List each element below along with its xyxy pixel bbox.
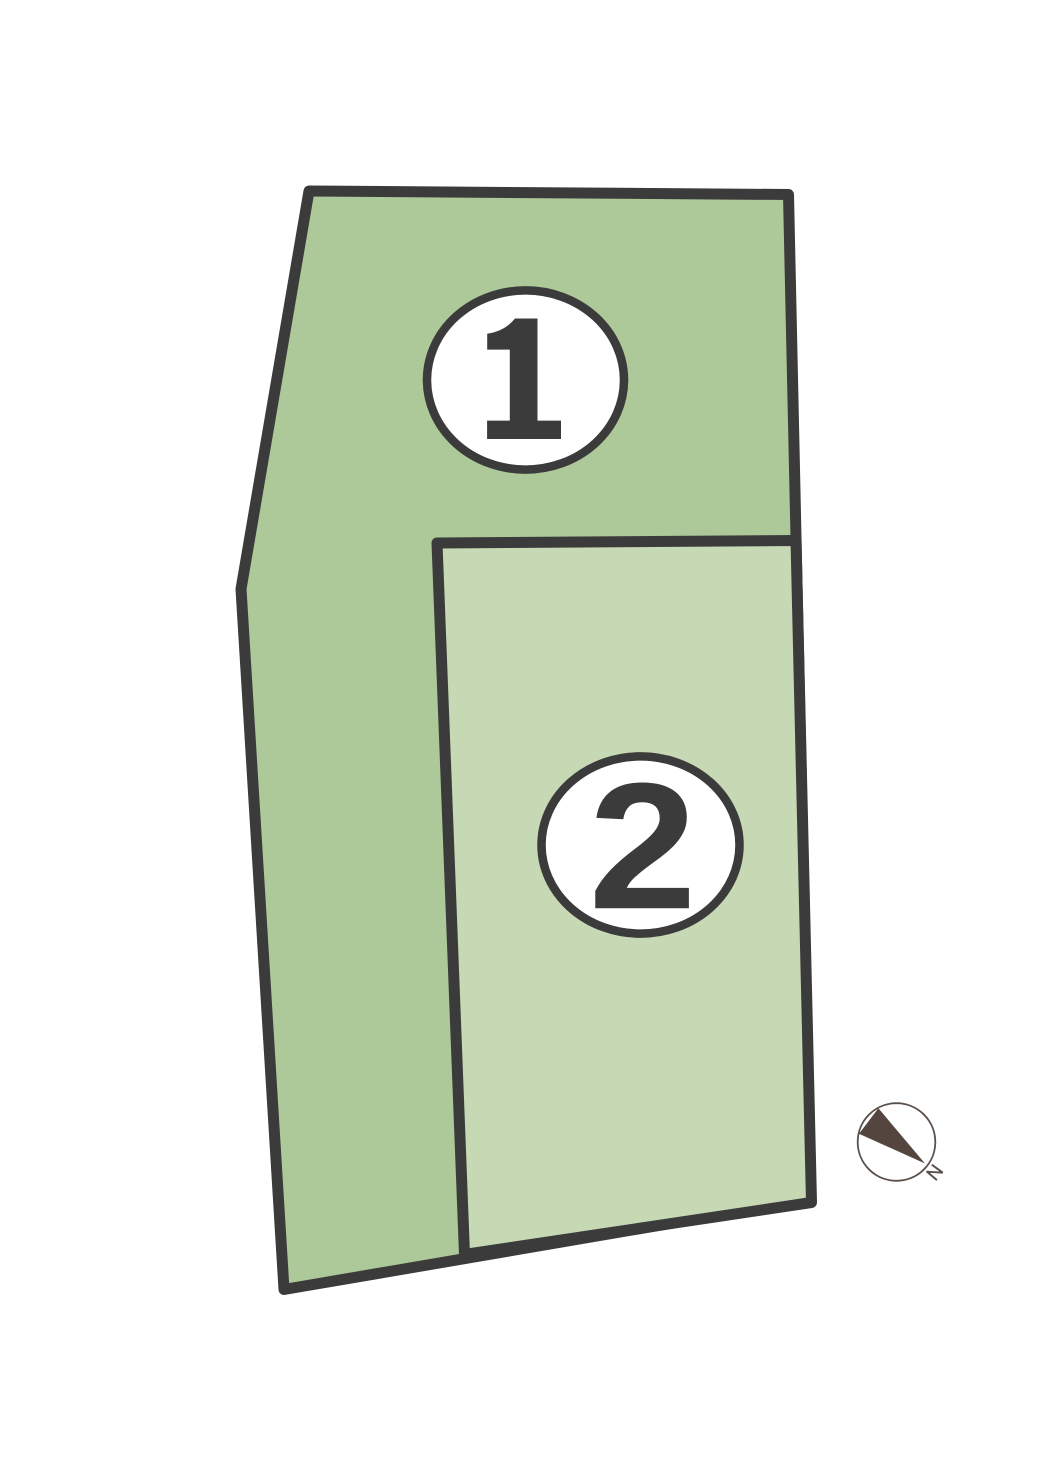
svg-text:2: 2 bbox=[589, 745, 697, 947]
